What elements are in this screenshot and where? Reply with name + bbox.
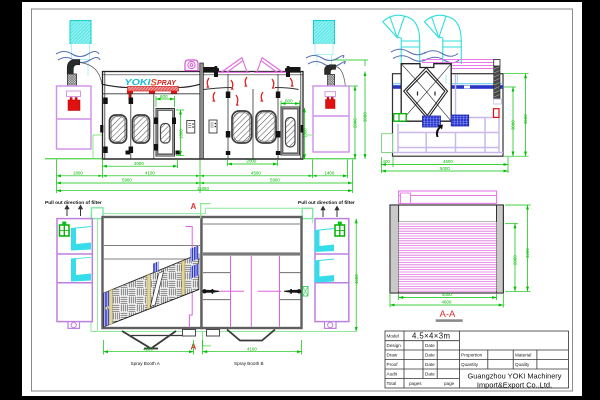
- svg-text:4.5×4×3m: 4.5×4×3m: [412, 331, 450, 340]
- svg-text:Spray Booth B: Spray Booth B: [234, 361, 264, 366]
- svg-text:Material: Material: [515, 353, 531, 358]
- svg-text:Date: Date: [425, 353, 435, 358]
- svg-text:Audit: Audit: [387, 372, 398, 377]
- svg-text:5000: 5000: [440, 166, 450, 171]
- svg-text:Spray Booth A: Spray Booth A: [131, 361, 161, 366]
- svg-text:Draw: Draw: [387, 353, 398, 358]
- svg-text:page: page: [444, 381, 455, 386]
- svg-text:3500: 3500: [363, 112, 368, 122]
- svg-text:Model: Model: [387, 334, 400, 339]
- svg-text:4600: 4600: [443, 159, 453, 164]
- svg-text:pages: pages: [409, 381, 422, 386]
- svg-text:5900: 5900: [122, 178, 132, 183]
- svg-text:Pull out direction of filter: Pull out direction of filter: [298, 200, 355, 206]
- svg-text:Date: Date: [425, 362, 435, 367]
- svg-text:1800: 1800: [73, 171, 83, 176]
- svg-text:4600: 4600: [442, 300, 452, 305]
- svg-text:Quantity: Quantity: [461, 362, 479, 367]
- svg-text:11850: 11850: [197, 186, 209, 191]
- svg-text:Guangzhou YOKI Machinery: Guangzhou YOKI Machinery: [468, 372, 562, 381]
- svg-text:A-A: A-A: [440, 309, 457, 320]
- svg-text:3200: 3200: [525, 248, 530, 258]
- svg-text:4000: 4000: [442, 292, 452, 297]
- svg-text:1800: 1800: [178, 129, 183, 139]
- svg-text:4500: 4500: [251, 171, 261, 176]
- svg-text:2800: 2800: [513, 255, 518, 265]
- svg-text:Import&Export Co.,Ltd.: Import&Export Co.,Ltd.: [477, 380, 552, 389]
- svg-text:YOKI: YOKI: [125, 78, 152, 87]
- svg-text:Pull out direction of filter: Pull out direction of filter: [45, 200, 102, 206]
- svg-text:3000: 3000: [511, 120, 516, 130]
- svg-text:4100: 4100: [145, 171, 155, 176]
- svg-text:400: 400: [383, 159, 391, 164]
- svg-text:3500: 3500: [523, 114, 528, 124]
- svg-text:5900: 5900: [270, 178, 280, 183]
- svg-text:Total: Total: [387, 381, 397, 386]
- svg-text:Proportion: Proportion: [461, 353, 483, 358]
- svg-text:1400: 1400: [325, 171, 335, 176]
- svg-text:Date: Date: [425, 343, 435, 348]
- svg-text:4100: 4100: [247, 346, 257, 351]
- svg-text:600: 600: [285, 98, 293, 103]
- svg-text:Quality: Quality: [515, 362, 530, 367]
- svg-text:Date: Date: [425, 372, 435, 377]
- svg-text:PRAY: PRAY: [157, 80, 177, 87]
- svg-text:Proof: Proof: [387, 362, 399, 367]
- svg-text:3000: 3000: [134, 161, 144, 166]
- svg-text:A: A: [191, 202, 197, 211]
- svg-text:4600: 4600: [354, 274, 359, 284]
- svg-text:2000: 2000: [247, 159, 257, 164]
- svg-text:Design: Design: [387, 343, 402, 348]
- svg-text:1800: 1800: [302, 128, 307, 138]
- svg-text:4100: 4100: [143, 346, 153, 351]
- svg-text:600: 600: [160, 94, 168, 99]
- svg-text:2800: 2800: [353, 118, 358, 128]
